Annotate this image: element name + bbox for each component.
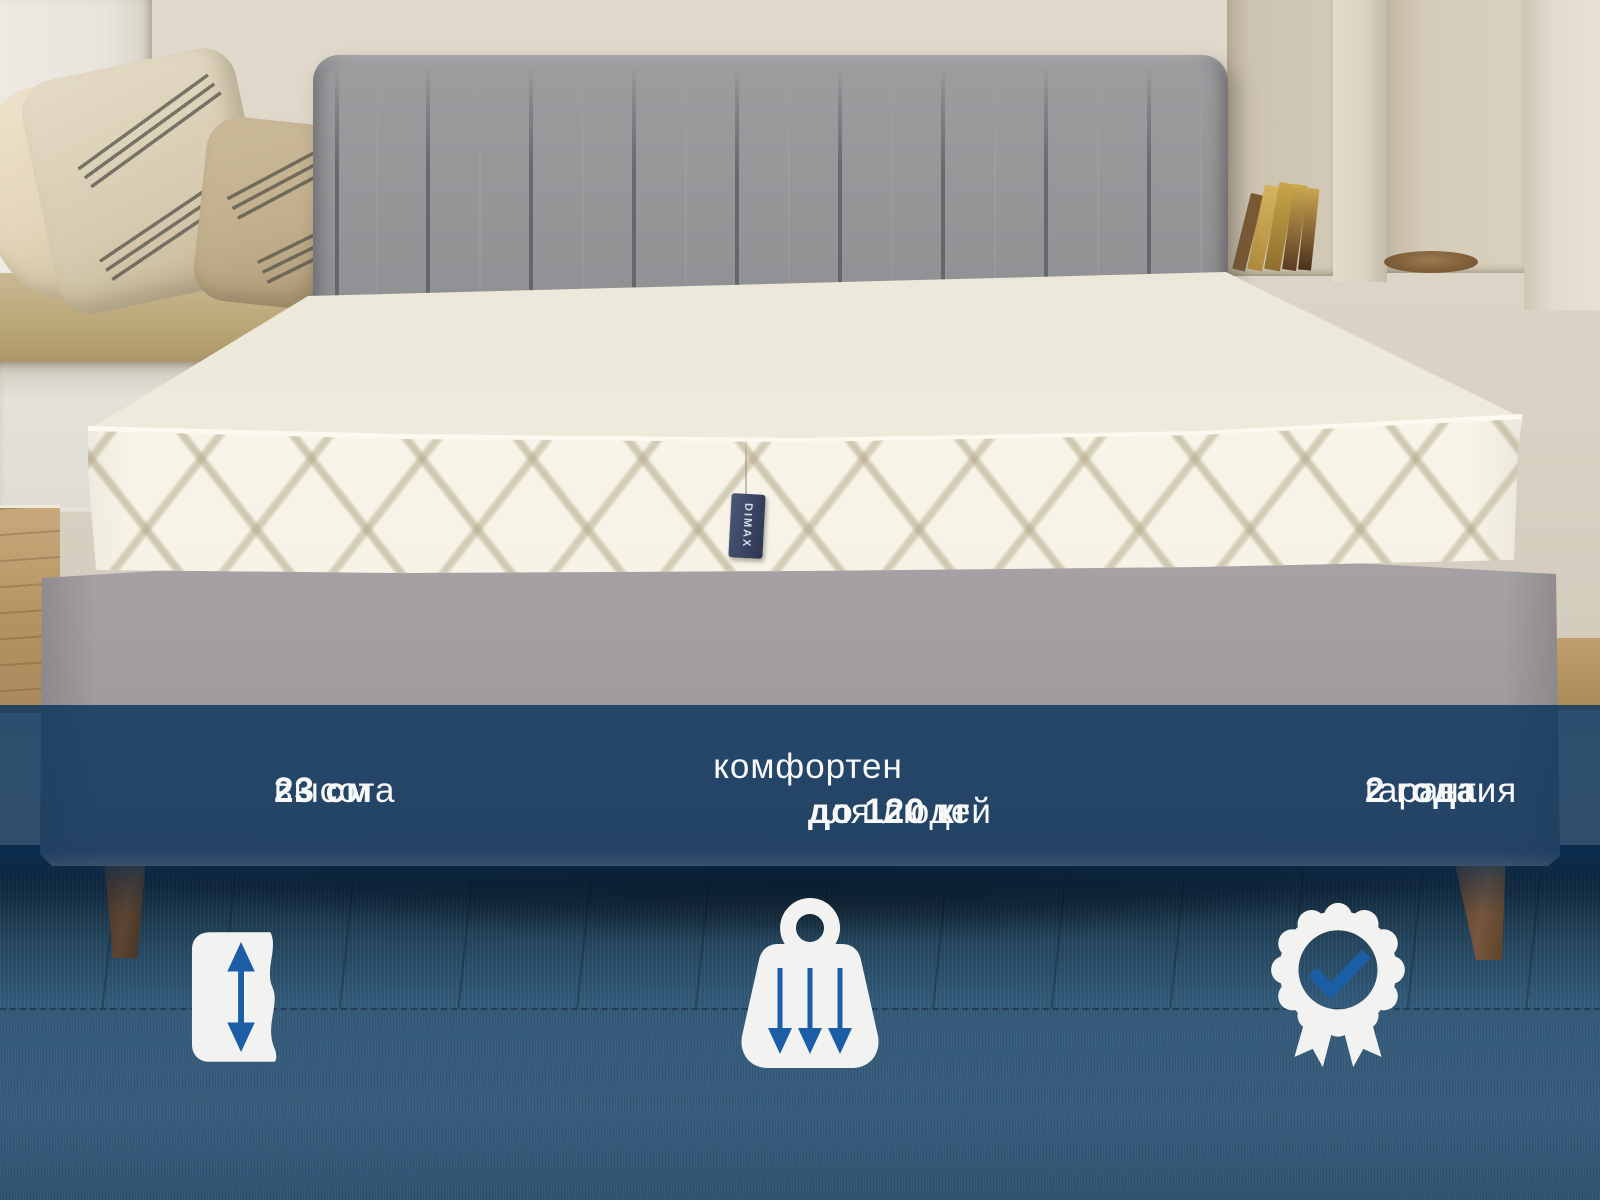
wall-column: [1524, 0, 1600, 310]
height-icon-shape: [192, 932, 276, 1062]
warranty-value: 2 года: [1365, 768, 1477, 813]
brand-tag: DIMAX: [728, 493, 765, 559]
brand-tag-label: DIMAX: [740, 503, 754, 549]
wall-niche-wood-slice: [1387, 0, 1524, 273]
warranty-badge-icon: [1262, 896, 1414, 1072]
max-weight-icon: [726, 896, 894, 1074]
wood-slice-decor: [1384, 251, 1478, 273]
product-banner: DIMAX высота 23 см комфортен для людей д…: [0, 0, 1600, 1200]
comfort-line1: комфортен: [590, 744, 1026, 789]
height-value: 23 см: [274, 768, 373, 813]
mattress-height-icon: [190, 930, 296, 1064]
comfort-caption: комфортен для людей до 120 кг: [590, 744, 1026, 789]
wall-niche-divider: [1333, 0, 1387, 282]
comfort-line2-value: до 120 кг: [808, 789, 971, 834]
books-on-shelf: [1228, 178, 1328, 270]
badge-rosette: [1271, 903, 1405, 1037]
